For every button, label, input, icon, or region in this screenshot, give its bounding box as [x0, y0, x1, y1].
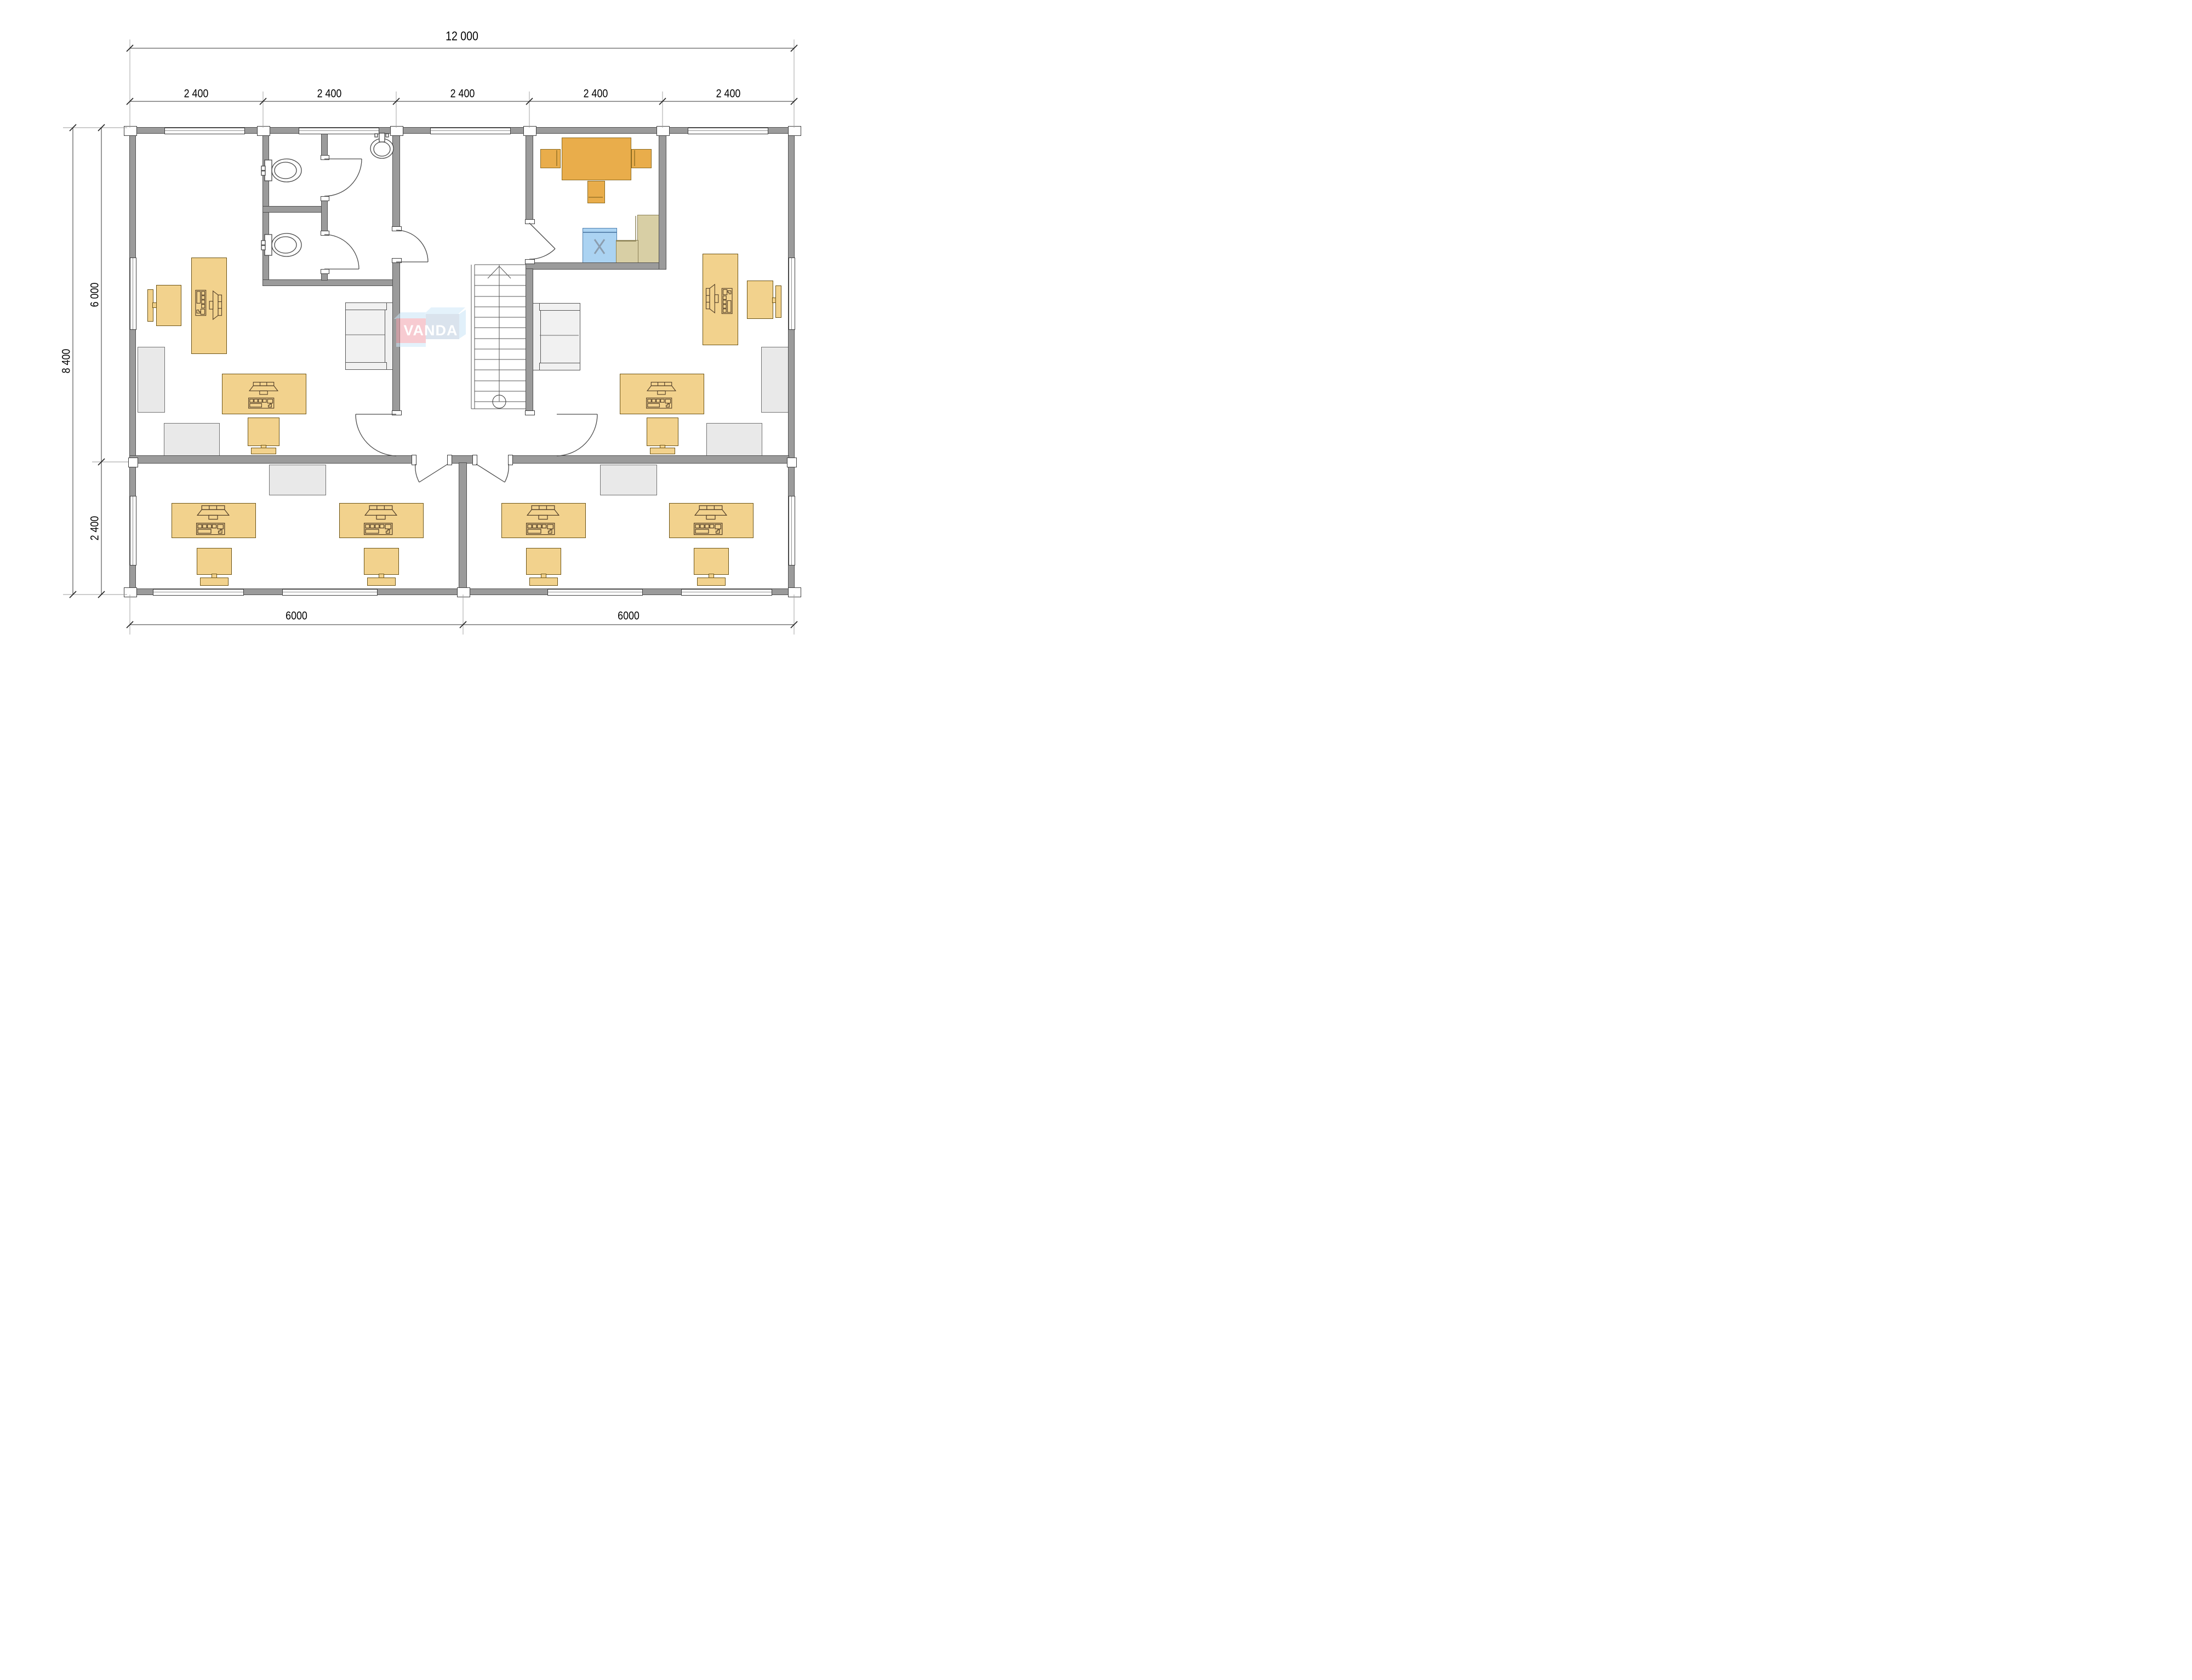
dim-label-bottom-seg-2: 6000 — [618, 610, 640, 622]
computer-icon — [706, 284, 733, 313]
dim-label-left-total: 8 400 — [61, 349, 72, 374]
computer-icon — [647, 382, 676, 409]
toilet-icon — [261, 159, 301, 182]
door-swing-office-right — [557, 414, 597, 456]
door-swing-bottom-left-office — [415, 464, 448, 482]
computer-icon — [196, 290, 222, 319]
stairs-up-icon — [471, 265, 526, 409]
computer-icon — [527, 506, 559, 535]
computer-icon — [364, 506, 397, 535]
dim-label-left-seg-1: 6 000 — [89, 283, 101, 307]
logo-text: VANDA — [396, 322, 465, 339]
vanda-watermark-logo: VANDA — [391, 305, 473, 351]
dim-label-left-seg-2: 2 400 — [89, 516, 101, 541]
dim-label-top-seg-2: 2 400 — [317, 88, 342, 100]
door-swing-wc-stall-2 — [324, 235, 359, 269]
door-swing-bottom-right-office — [476, 464, 509, 482]
dim-label-top-seg-4: 2 400 — [584, 88, 608, 100]
dim-label-top-seg-1: 2 400 — [184, 88, 209, 100]
dim-label-bottom-seg-1: 6000 — [286, 610, 307, 622]
logo-bevel-bottom — [396, 343, 426, 347]
door-swing-office-left — [356, 414, 396, 456]
computer-icon — [197, 506, 229, 535]
door-swing-bathroom — [396, 230, 428, 262]
floor-plan-canvas: VANDA 12 000 2 400 2 400 2 400 2 400 2 4… — [0, 0, 859, 659]
door-swing-wc-stall-1 — [324, 159, 362, 196]
dim-label-top-seg-5: 2 400 — [716, 88, 741, 100]
computer-icon — [249, 382, 278, 409]
appliance-x-mark — [595, 239, 604, 254]
toilet-icon — [261, 233, 301, 256]
computer-icon — [694, 506, 727, 535]
door-swing-kitchen — [529, 223, 555, 259]
dim-label-top-seg-3: 2 400 — [450, 88, 475, 100]
sink-icon — [370, 133, 393, 158]
kitchen-detail-lines — [557, 150, 636, 241]
dim-label-top-total: 12 000 — [446, 30, 478, 43]
